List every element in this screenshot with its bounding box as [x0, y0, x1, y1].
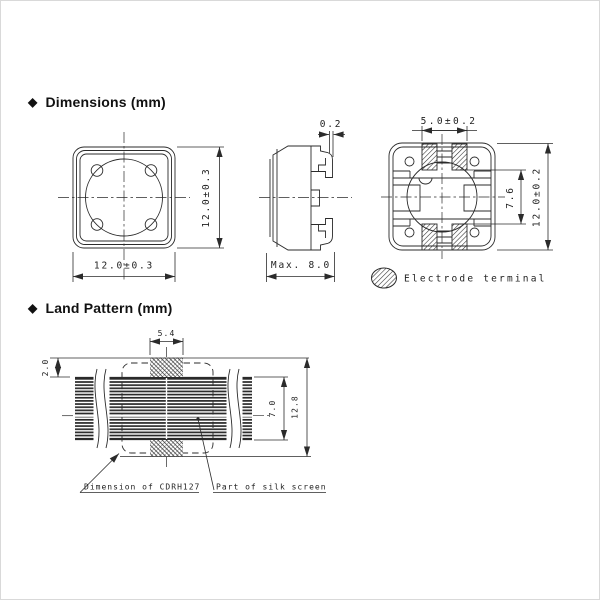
winding-lines	[437, 231, 452, 243]
dim-front-height: 12.0±0.3	[201, 167, 212, 227]
side-view: 0.2 Max. 8.0	[259, 119, 352, 282]
dim-bottom-height: 12.0±0.2	[532, 167, 543, 227]
dim-overall-height: 12.8	[291, 395, 300, 419]
dim-side-gap: 0.2	[320, 119, 343, 130]
silk-screen-label: Part of silk screen	[216, 483, 327, 492]
electrode-terminal-legend: Electrode terminal	[372, 268, 547, 288]
component-outline-label: Dimension of CDRH127	[84, 483, 200, 492]
electrode-terminal-swatch-icon	[372, 268, 397, 288]
technical-drawing: 12.0±0.3 12.0±0.3	[0, 0, 600, 600]
dim-side-width: Max. 8.0	[271, 260, 331, 271]
dim-terminal-span: 5.0±0.2	[421, 116, 478, 127]
winding-lines	[437, 151, 452, 163]
component-outline-callout: Dimension of CDRH127	[80, 454, 200, 493]
front-view: 12.0±0.3 12.0±0.3	[58, 132, 224, 282]
dim-pad-width: 5.4	[158, 329, 176, 338]
corner-lug	[470, 157, 479, 166]
body-profile	[273, 146, 311, 250]
terminal-bottom	[311, 219, 333, 251]
dim-pad-overhang: 2.0	[41, 359, 50, 377]
core-notch	[419, 178, 432, 184]
land-pattern: 2.0 5.4 7.0 12.8 Dimension of CDRH127	[41, 329, 327, 493]
corner-lug	[405, 157, 414, 166]
dim-terminal-inner-gap: 7.6	[505, 186, 516, 209]
datasheet-page: ◆ Dimensions (mm) ◆ Land Pattern (mm)	[0, 0, 600, 600]
legend-label: Electrode terminal	[404, 274, 547, 285]
dim-silk-height: 7.0	[268, 400, 277, 418]
corner-lug	[470, 228, 479, 237]
dim-front-width: 12.0±0.3	[94, 261, 154, 272]
silk-screen-band	[75, 369, 252, 448]
bottom-view: 5.0±0.2 7.6 12.0±0.2	[381, 116, 553, 259]
corner-lug	[405, 228, 414, 237]
